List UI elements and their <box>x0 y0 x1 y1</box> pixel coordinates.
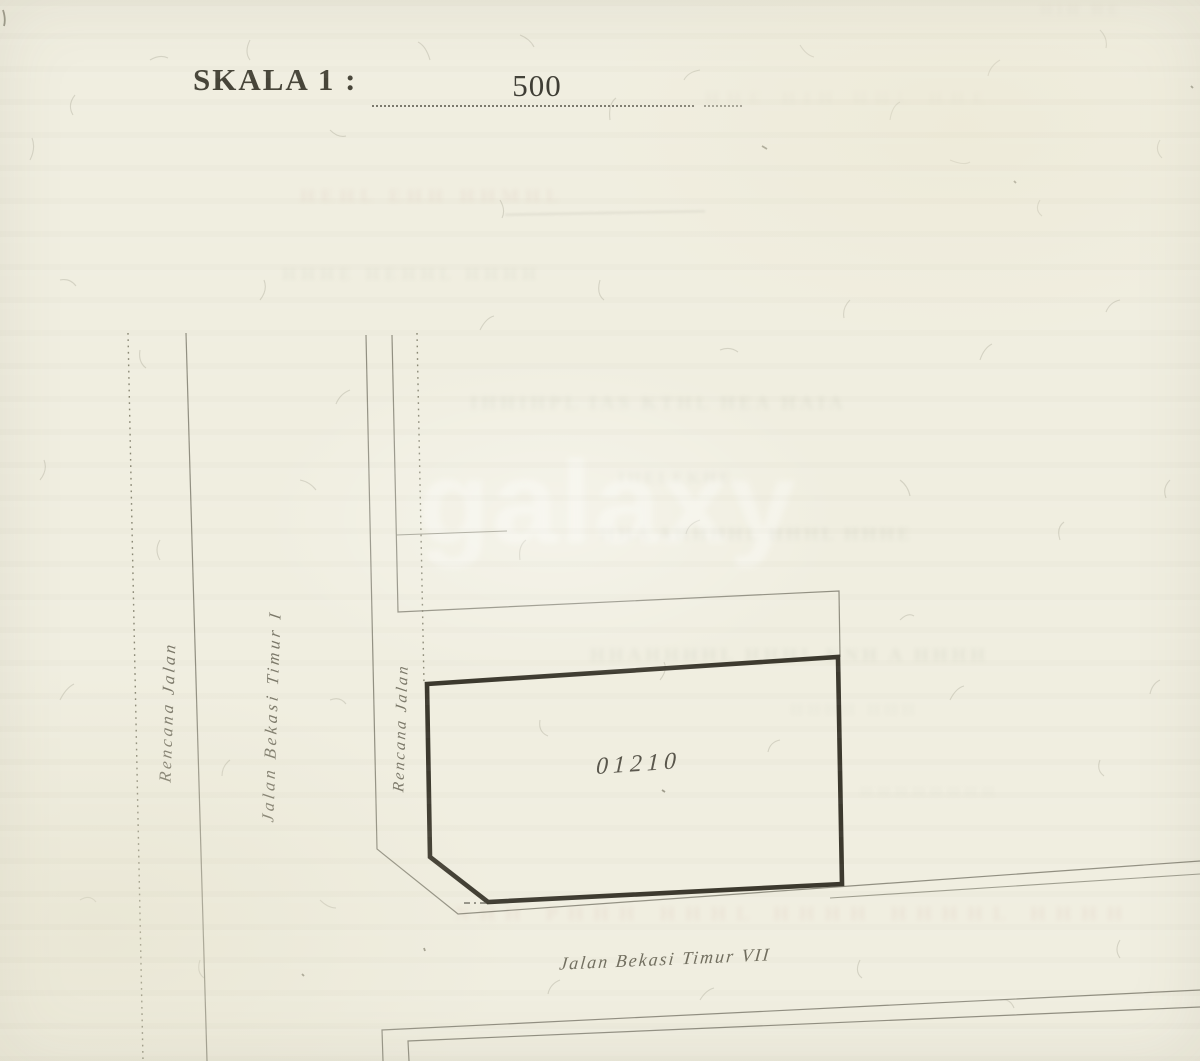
road-edge-dotted-inner <box>417 333 424 684</box>
road-edge-dotted-left <box>128 333 143 1061</box>
plot-boundary-thick <box>427 657 842 902</box>
boundary-stub <box>396 531 507 535</box>
road-edge-inner-west <box>366 335 1200 914</box>
road-edge-south <box>830 874 1200 898</box>
next-parcel-outer <box>382 990 1200 1061</box>
parcel-map-drawing <box>0 0 1200 1061</box>
scanned-survey-map-page: HIH HE HHE HIH HHL HHE HEHL EHH HHMHL HH… <box>0 0 1200 1061</box>
next-parcel-inner <box>408 1007 1200 1061</box>
road-edge-left <box>186 333 207 1061</box>
road-edge-inner-east <box>392 335 840 657</box>
